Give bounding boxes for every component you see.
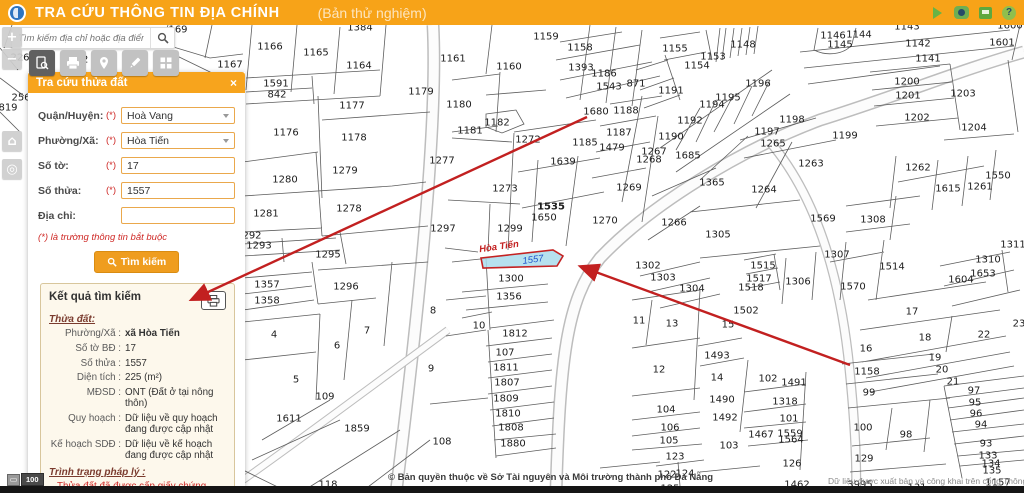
app-window: Hòa Tiến 1557 16911672262225681913841166… xyxy=(0,0,1024,493)
map-attribution: © Bản quyền thuộc về Sở Tài nguyên và Mô… xyxy=(388,472,713,483)
scale-value: 100 xyxy=(21,473,44,486)
form-row: Số thửa:(*) xyxy=(38,182,235,199)
layers-tool-button[interactable] xyxy=(153,50,179,76)
field-label: Phường/Xã: xyxy=(38,135,100,147)
camera-icon[interactable] xyxy=(954,5,969,20)
close-icon[interactable]: × xyxy=(230,77,237,89)
required-mark: (*) xyxy=(100,185,116,196)
chevron-down-icon xyxy=(223,139,229,143)
result-value: 1557 xyxy=(125,358,147,369)
form-row: Quận/Huyện:(*)Hoà Vang xyxy=(38,107,235,124)
print-tool-button[interactable] xyxy=(60,50,86,76)
pencil-icon xyxy=(128,56,142,70)
header: TRA CỨU THÔNG TIN ĐỊA CHÍNH (Bản thử ngh… xyxy=(0,0,1024,25)
results-section-parcel: Thửa đất: xyxy=(49,314,226,325)
result-label: Diện tích : xyxy=(49,372,121,383)
required-note: (*) là trường thông tin bắt buộc xyxy=(38,232,235,243)
find-button[interactable]: Tìm kiếm xyxy=(94,251,180,273)
result-label: Phường/Xã : xyxy=(49,328,121,339)
result-label: Số thửa : xyxy=(49,358,121,369)
app-subtitle: (Bản thử nghiệm) xyxy=(318,5,427,21)
address-search-box xyxy=(11,27,175,49)
panel-title: Tra cứu thửa đất xyxy=(36,77,127,89)
address-input[interactable] xyxy=(121,207,235,224)
parcel-lookup-panel: Tra cứu thửa đất × Quận/Huyện:(*)Hoà Van… xyxy=(28,72,245,486)
print-results-button[interactable] xyxy=(201,291,226,310)
results-section-legal: Trình trạng pháp lý : xyxy=(49,467,226,478)
result-row: Số thửa :1557 xyxy=(49,358,226,369)
map-marker-icon xyxy=(97,56,111,70)
search-results-box: Kết quả tìm kiếm Thửa đất: Phường/Xã :xã… xyxy=(40,283,235,493)
results-rows: Phường/Xã :xã Hòa TiếnSố tờ BĐ :17Số thử… xyxy=(49,328,226,462)
document-search-icon xyxy=(35,56,49,70)
lookup-form: Quận/Huyện:(*)Hoà VangPhường/Xã:(*)Hòa T… xyxy=(28,93,245,224)
district-select[interactable]: Hoà Vang xyxy=(121,107,235,124)
field-label: Số tờ: xyxy=(38,160,100,172)
field-label: Số thửa: xyxy=(38,185,100,197)
form-row: Số tờ:(*) xyxy=(38,157,235,174)
result-value: 225 (m²) xyxy=(125,372,162,383)
result-value: Dữ liệu về quy hoạch đang được cập nhật xyxy=(125,413,226,436)
required-mark: (*) xyxy=(100,160,116,171)
result-value: ONT (Đất ở tại nông thôn) xyxy=(125,387,226,410)
parcel-input[interactable] xyxy=(121,182,235,199)
bottom-bar xyxy=(0,486,1024,493)
chevron-down-icon xyxy=(223,114,229,118)
measure-tool-button[interactable] xyxy=(122,50,148,76)
required-mark: (*) xyxy=(100,135,116,146)
result-label: Kế hoạch SDĐ : xyxy=(49,439,121,462)
help-icon[interactable]: ? xyxy=(1002,6,1016,20)
sheet-input[interactable] xyxy=(121,157,235,174)
layers-grid-icon xyxy=(159,56,173,70)
printer-icon xyxy=(207,295,220,307)
result-row: MĐSD :ONT (Đất ở tại nông thôn) xyxy=(49,387,226,410)
result-label: Số tờ BĐ : xyxy=(49,343,121,354)
result-label: Quy hoạch : xyxy=(49,413,121,436)
search-input[interactable] xyxy=(12,33,150,44)
result-value: 17 xyxy=(125,343,136,354)
result-row: Số tờ BĐ :17 xyxy=(49,343,226,354)
map-toolbar xyxy=(29,50,179,76)
form-row: Phường/Xã:(*)Hòa Tiến xyxy=(38,132,235,149)
app-title: TRA CỨU THÔNG TIN ĐỊA CHÍNH xyxy=(35,5,280,21)
results-title: Kết quả tìm kiếm xyxy=(49,291,141,303)
result-row: Phường/Xã :xã Hòa Tiến xyxy=(49,328,226,339)
app-logo-icon xyxy=(8,4,26,22)
selected-value: Hoà Vang xyxy=(127,110,173,122)
locate-button[interactable]: ◎ xyxy=(2,159,22,179)
parcel-search-tool-button[interactable] xyxy=(29,50,55,76)
zoom-out-button[interactable]: − xyxy=(2,49,22,69)
scale-icon: ▭ xyxy=(7,474,20,486)
result-row: Kế hoạch SDĐ :Dữ liệu về kế hoạch đang đ… xyxy=(49,439,226,462)
ward-select[interactable]: Hòa Tiến xyxy=(121,132,235,149)
marker-tool-button[interactable] xyxy=(91,50,117,76)
form-row: Địa chỉ: xyxy=(38,207,235,224)
search-icon xyxy=(157,32,169,44)
zoom-in-button[interactable]: + xyxy=(2,27,22,47)
chat-icon[interactable] xyxy=(978,5,993,20)
scale-widget: ▭ 100 xyxy=(7,473,44,486)
search-icon xyxy=(107,257,117,267)
field-label: Địa chỉ: xyxy=(38,210,100,222)
printer-icon xyxy=(66,56,80,70)
result-value: xã Hòa Tiến xyxy=(125,328,180,339)
result-row: Quy hoạch :Dữ liệu về quy hoạch đang đượ… xyxy=(49,413,226,436)
result-value: Dữ liệu về kế hoạch đang được cập nhật xyxy=(125,439,226,462)
selected-value: Hòa Tiến xyxy=(127,135,169,147)
map-attribution-secondary: Dữ liệu được xuất bản và công khai trên … xyxy=(828,476,1024,486)
play-icon[interactable] xyxy=(930,5,945,20)
result-row: Diện tích :225 (m²) xyxy=(49,372,226,383)
search-button[interactable] xyxy=(150,28,174,48)
field-label: Quận/Huyện: xyxy=(38,110,100,122)
result-label: MĐSD : xyxy=(49,387,121,410)
required-mark: (*) xyxy=(100,110,116,121)
home-button[interactable]: ⌂ xyxy=(2,131,22,151)
